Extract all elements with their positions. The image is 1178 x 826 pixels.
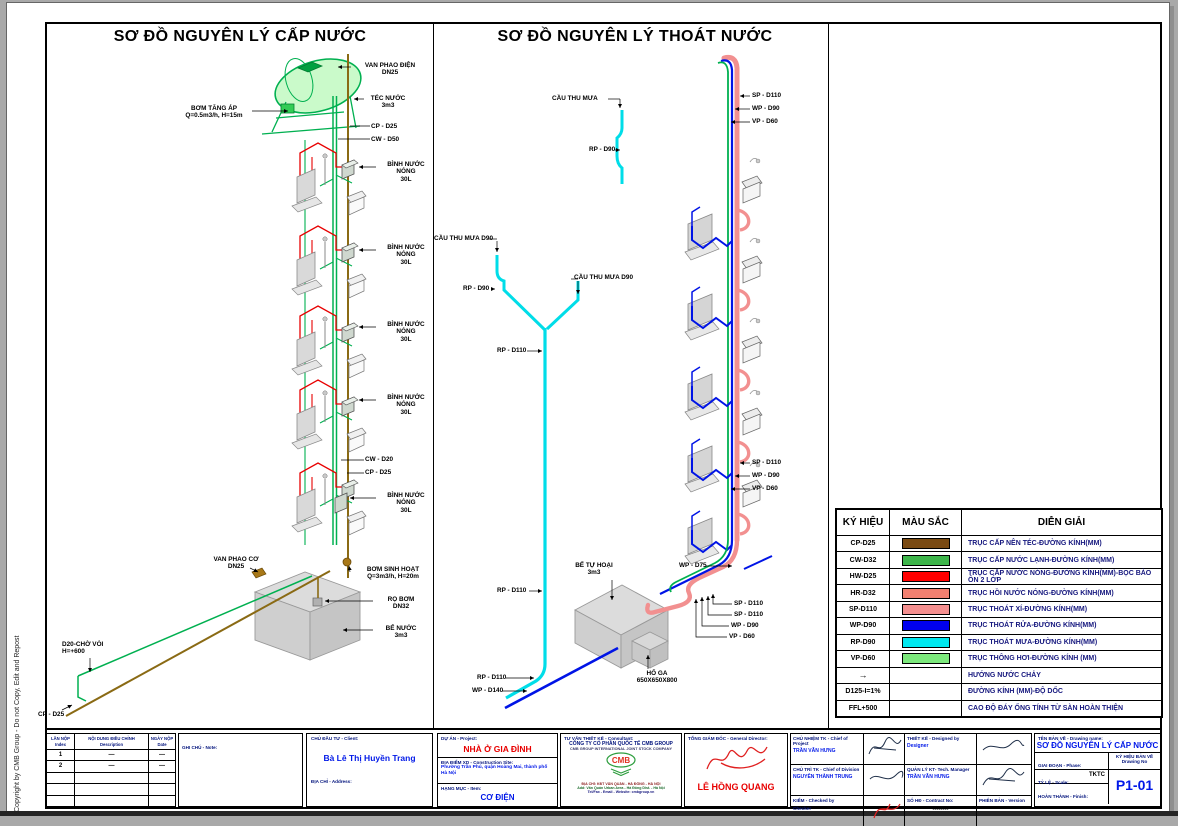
director-signature [701, 741, 771, 777]
legend-desc: TRỤC THOÁT MƯA-ĐƯỜNG KÍNH(MM) [961, 635, 1161, 650]
designed-label: THIẾT KẾ - Designed by [907, 736, 974, 741]
signature-row: CHỦ TRÌ TK - Chief of DivisionNGUYỄN THÀ… [791, 764, 1031, 795]
diagram-label: WP - D75 [679, 562, 707, 569]
diagram-label: TÉC NƯỚC 3m3 [353, 95, 423, 110]
consultant-name: CÔNG TY CỔ PHẦN QUỐC TẾ CMB GROUP [564, 741, 678, 747]
legend-row: WP-D90TRỤC THOÁT RỬA-ĐƯỜNG KÍNH(MM) [837, 617, 1161, 633]
signature-row: CHỦ NHIỆM TK - Chief of ProjectTRẦN VĂN … [791, 734, 1031, 764]
legend-swatch-cell [889, 668, 961, 683]
diagram-label: VP - D60 [752, 485, 778, 492]
consultant-box: TƯ VẤN THIẾT KẾ - Consultant: CÔNG TY CỔ… [560, 733, 682, 807]
diagram-label: RP - D90 [589, 146, 615, 153]
legend-symbol: D125-I=1% [837, 684, 889, 699]
diagram-label: SP - D110 [734, 611, 763, 618]
diagram-label: BÌNH NƯỚC NÓNG 30L [378, 492, 434, 514]
drawing-name-label: TÊN BẢN VẼ - Drawing name: [1035, 734, 1160, 741]
diagram-label: CW - D50 [371, 136, 399, 143]
legend-desc: ĐƯỜNG KÍNH (MM)-ĐỘ DỐC [961, 684, 1161, 699]
color-swatch [902, 538, 950, 549]
rev-idx: 1 [47, 750, 74, 760]
diagram-label: BỂ TỰ HOẠI 3m3 [563, 562, 625, 577]
drawing-info-box: TÊN BẢN VẼ - Drawing name: SƠ ĐỒ NGUYÊN … [1034, 733, 1161, 807]
diagram-label: RP - D90 [463, 285, 489, 292]
legend-desc: CAO ĐỘ ĐÁY ỐNG TÍNH TỪ SÀN HOÀN THIỆN [961, 701, 1161, 716]
legend-swatch-cell [889, 536, 961, 551]
diagram-label: CẦU THU MƯA [552, 95, 598, 102]
signature-mark [866, 767, 904, 789]
rev-col1-en: Index [55, 742, 66, 747]
diagram-label: BÌNH NƯỚC NÓNG 30L [378, 321, 434, 343]
legend-symbol: CW-D32 [837, 552, 889, 567]
legend-desc: TRỤC THÔNG HƠI-ĐƯỜNG KÍNH (MM) [961, 651, 1161, 666]
legend-swatch-cell [889, 635, 961, 650]
rev-desc: — [74, 761, 148, 771]
legend-symbol: HR-D32 [837, 585, 889, 600]
diagram-label: SP - D110 [752, 459, 781, 466]
diagram-label: BÌNH NƯỚC NÓNG 30L [378, 161, 434, 183]
color-swatch [902, 588, 950, 599]
legend-row: FFL+500CAO ĐỘ ĐÁY ỐNG TÍNH TỪ SÀN HOÀN T… [837, 700, 1161, 716]
signature-mark-red [866, 798, 904, 820]
diagram-label: RP - D110 [497, 587, 526, 594]
legend-swatch-cell [889, 701, 961, 716]
legend-table: KÝ HIỆU MÀU SẮC DIỄN GIẢI CP-D25TRỤC CẤP… [835, 508, 1163, 718]
color-swatch [902, 620, 950, 631]
legend-swatch-cell [889, 651, 961, 666]
title-block: LẦN NỘPIndex NỘI DUNG ĐIỀU CHỈNHDescript… [45, 728, 1162, 809]
diagram-label: RP - D110 [477, 674, 506, 681]
legend-desc: HƯỚNG NƯỚC CHẢY [961, 668, 1161, 683]
revision-row [47, 783, 175, 794]
client-label: CHỦ ĐẦU TƯ - Client: [311, 736, 428, 741]
signature-mark [979, 767, 1027, 789]
legend-row: SP-D110TRỤC THOÁT XÍ-ĐƯỜNG KÍNH(MM) [837, 601, 1161, 617]
supply-pipes [62, 50, 376, 716]
drawing-number: P1-01 [1109, 770, 1160, 793]
legend-header-color: MÀU SẮC [889, 510, 961, 535]
legend-symbol: FFL+500 [837, 701, 889, 716]
revision-row [47, 772, 175, 783]
diagram-label: D20-CHỜ VÒI H=+600 [62, 641, 103, 656]
legend-symbol: CP-D25 [837, 536, 889, 551]
drawing-sheet: Copyright by CMB Group - Do not Copy, Ed… [0, 0, 1178, 816]
cmb-logo: CMB [603, 751, 639, 777]
diagram-label: VAN PHAO ĐIỆN DN25 [352, 62, 428, 77]
site-value: Phường Trần Phú, quận Hoàng Mai, thành p… [441, 765, 554, 777]
legend-swatch-cell [889, 569, 961, 584]
legend-row: CW-D32TRỤC CẤP NƯỚC LẠNH-ĐƯỜNG KÍNH(MM) [837, 551, 1161, 567]
consultant-addr3: Tel/Fax - Email - Website: cmbgroup.vn [564, 790, 678, 794]
legend-header-row: KÝ HIỆU MÀU SẮC DIỄN GIẢI [837, 510, 1161, 535]
legend-desc: TRỤC CẤP NƯỚC LẠNH-ĐƯỜNG KÍNH(MM) [961, 552, 1161, 567]
designed-name: Designer [907, 743, 974, 749]
diagram-label: CẦU THU MƯA D90 [434, 235, 493, 242]
drawing-no-label-en: Drawing No [1111, 759, 1158, 764]
signature-mark [866, 736, 904, 758]
legend-desc: TRỤC HỒI NƯỚC NÓNG-ĐƯỜNG KÍNH(MM) [961, 585, 1161, 600]
phase-label: GIAI ĐOẠN - Phase: [1038, 763, 1081, 768]
legend-desc: TRỤC THOÁT RỬA-ĐƯỜNG KÍNH(MM) [961, 618, 1161, 633]
legend-swatch-cell [889, 618, 961, 633]
chief-project-name: TRẦN VĂN HƯNG [793, 748, 861, 754]
director-box: TỔNG GIÁM ĐỐC - General Director: LÊ HỒN… [684, 733, 788, 807]
diagram-label: HỐ GA 650X650X800 [623, 670, 691, 685]
color-swatch [902, 571, 950, 582]
legend-symbol: RP-D90 [837, 635, 889, 650]
legend-desc: TRỤC CẤP NƯỚC NÓNG-ĐƯỜNG KÍNH(MM)-BỌC BẢ… [961, 569, 1161, 584]
project-box: DỰ ÁN - Project: NHÀ Ở GIA ĐÌNH ĐỊA ĐIỂM… [437, 733, 558, 807]
diagram-label: BÌNH NƯỚC NÓNG 30L [378, 244, 434, 266]
diagram-label: WP - D90 [752, 105, 780, 112]
tech-manager-label: QUẢN LÝ KT- Tech. Manager [907, 767, 974, 772]
legend-desc: TRỤC CẤP NÊN TÉC-ĐƯỜNG KÍNH(MM) [961, 536, 1161, 551]
project-label: DỰ ÁN - Project: [441, 736, 554, 741]
diagram-label: CP - D25 [371, 123, 397, 130]
rev-idx: 2 [47, 761, 74, 771]
legend-header-desc: DIỄN GIẢI [961, 510, 1161, 535]
revision-row [47, 795, 175, 806]
legend-symbol: SP-D110 [837, 602, 889, 617]
diagram-label: BỂ NƯỚC 3m3 [375, 625, 427, 640]
color-swatch [902, 604, 950, 615]
legend-row: →HƯỚNG NƯỚC CHẢY [837, 667, 1161, 683]
legend-row: VP-D60TRỤC THÔNG HƠI-ĐƯỜNG KÍNH (MM) [837, 650, 1161, 666]
drain-pipes [489, 57, 772, 708]
contract-label: SỐ HĐ - Contract No: [907, 798, 974, 803]
color-swatch [902, 653, 950, 664]
version-label: PHIÊN BẢN - Version [979, 798, 1029, 803]
revision-row: 2 — — [47, 760, 175, 771]
flow-arrow-icon: → [837, 668, 889, 683]
diagram-label: RỌ BƠM DN32 [375, 596, 427, 611]
legend-row: HR-D32TRỤC HỒI NƯỚC NÓNG-ĐƯỜNG KÍNH(MM) [837, 584, 1161, 600]
item-value: CƠ ĐIỆN [441, 793, 554, 802]
diagram-label: SP - D110 [734, 600, 763, 607]
diagram-label: CW - D20 [365, 456, 393, 463]
checked-name: Checker [793, 806, 861, 811]
diagram-label: RP - D110 [497, 347, 526, 354]
chief-project-label: CHỦ NHIỆM TK - Chief of Project [793, 736, 861, 746]
diagram-label: WP - D90 [752, 472, 780, 479]
svg-text:CMB: CMB [612, 756, 630, 765]
signature-mark [979, 736, 1027, 758]
diagram-label: CẦU THU MƯA D90 [574, 274, 633, 281]
rev-col2-en: Description [100, 742, 123, 747]
legend-symbol: VP-D60 [837, 651, 889, 666]
client-name: Bà Lê Thị Huyền Trang [311, 753, 428, 763]
legend-row: HW-D25TRỤC CẤP NƯỚC NÓNG-ĐƯỜNG KÍNH(MM)-… [837, 568, 1161, 584]
legend-header-symbol: KÝ HIỆU [837, 510, 889, 535]
diagram-label: WP - D90 [731, 622, 759, 629]
finish-label: HOÀN THÀNH - Finish: [1038, 794, 1088, 799]
diagram-label: VP - D60 [752, 118, 778, 125]
signature-grid: CHỦ NHIỆM TK - Chief of ProjectTRẦN VĂN … [790, 733, 1032, 807]
client-box: CHỦ ĐẦU TƯ - Client: Bà Lê Thị Huyền Tra… [306, 733, 433, 807]
legend-swatch-cell [889, 552, 961, 567]
tech-manager-name: TRẦN VĂN HƯNG [907, 774, 974, 780]
note-box: GHI CHÚ - Note: [178, 733, 303, 807]
project-name: NHÀ Ở GIA ĐÌNH [441, 744, 554, 754]
rev-col3-en: Date [157, 742, 166, 747]
color-swatch [902, 555, 950, 566]
revision-header: LẦN NỘPIndex NỘI DUNG ĐIỀU CHỈNHDescript… [47, 734, 175, 749]
diagram-label: CP - D25 [365, 469, 391, 476]
checked-label: KIỂM - Checked by [793, 798, 861, 803]
client-address-label: ĐỊA CHỈ - Address: [311, 779, 428, 784]
revision-row: 1 — — [47, 749, 175, 760]
diagram-label: VAN PHAO CƠ DN25 [205, 556, 267, 571]
legend-row: RP-D90TRỤC THOÁT MƯA-ĐƯỜNG KÍNH(MM) [837, 634, 1161, 650]
diagram-label: WP - D140 [472, 687, 503, 694]
legend-row: CP-D25TRỤC CẤP NÊN TÉC-ĐƯỜNG KÍNH(MM) [837, 535, 1161, 551]
legend-swatch-cell [889, 684, 961, 699]
contract-value: -------- [907, 807, 974, 813]
diagram-label: SP - D110 [752, 92, 781, 99]
chief-division-label: CHỦ TRÌ TK - Chief of Division [793, 767, 861, 772]
rev-date: — [148, 761, 175, 771]
legend-row: D125-I=1%ĐƯỜNG KÍNH (MM)-ĐỘ DỐC [837, 683, 1161, 699]
director-name: LÊ HỒNG QUANG [688, 782, 784, 792]
diagram-label: VP - D60 [729, 633, 755, 640]
legend-desc: TRỤC THOÁT XÍ-ĐƯỜNG KÍNH(MM) [961, 602, 1161, 617]
diagram-label: BƠM TĂNG ÁP Q=0.5m3/h, H=15m [164, 105, 264, 120]
legend-swatch-cell [889, 585, 961, 600]
diagram-label: BÌNH NƯỚC NÓNG 30L [378, 394, 434, 416]
color-swatch [902, 637, 950, 648]
rev-date: — [148, 750, 175, 760]
legend-symbol: WP-D90 [837, 618, 889, 633]
legend-symbol: HW-D25 [837, 569, 889, 584]
diagram-label: BƠM SINH HOẠT Q=3m3/h, H=20m [352, 566, 434, 581]
legend-swatch-cell [889, 602, 961, 617]
chief-division-name: NGUYỄN THÀNH TRUNG [793, 774, 861, 780]
diagram-label: CP - D25 [38, 711, 64, 718]
revision-table: LẦN NỘPIndex NỘI DUNG ĐIỀU CHỈNHDescript… [46, 733, 176, 807]
note-label: GHI CHÚ - Note: [182, 745, 217, 750]
signature-row: KIỂM - Checked byChecker SỐ HĐ - Contrac… [791, 795, 1031, 826]
rev-desc: — [74, 750, 148, 760]
item-label: HẠNG MỤC - Item: [441, 786, 554, 791]
drawing-name: SƠ ĐỒ NGUYÊN LÝ CẤP NƯỚC [1035, 741, 1160, 753]
